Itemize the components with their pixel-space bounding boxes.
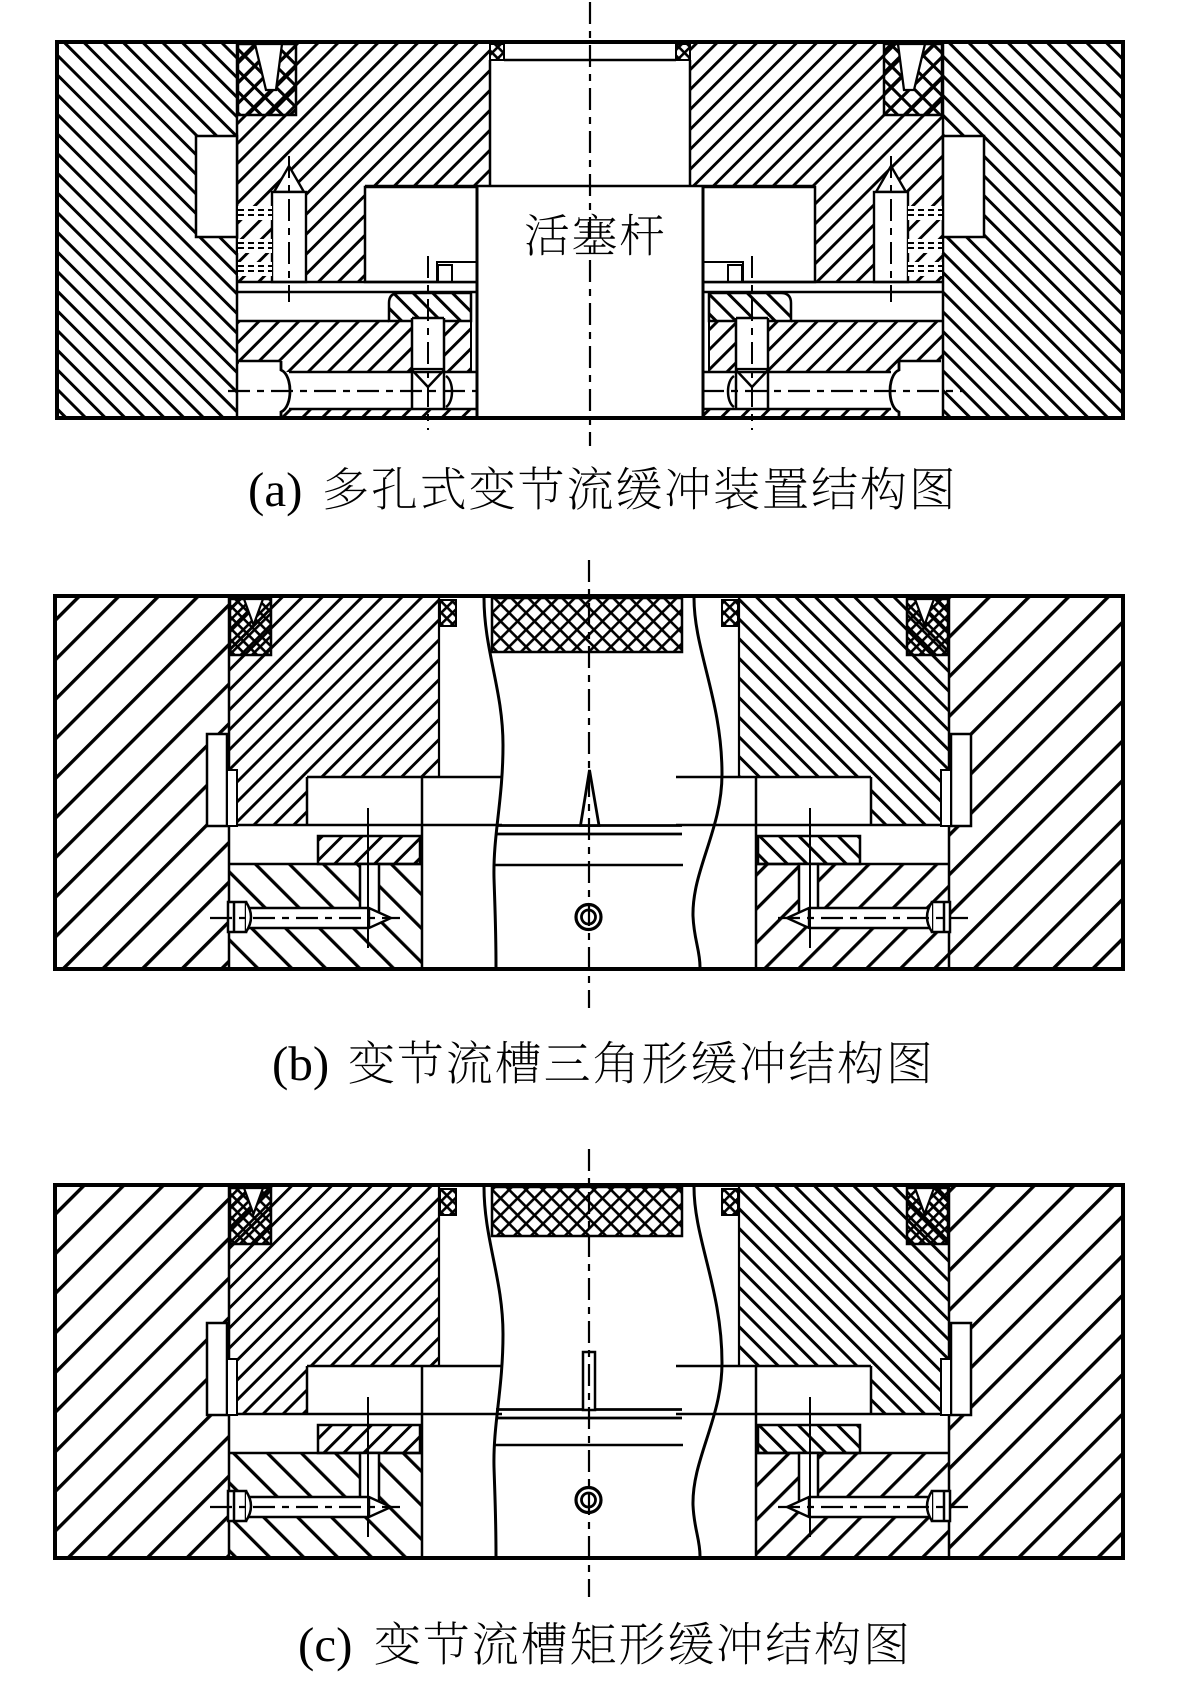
svg-text:(a): (a) — [248, 462, 302, 517]
svg-text:(c): (c) — [298, 1617, 352, 1672]
svg-text:(b): (b) — [272, 1036, 329, 1091]
